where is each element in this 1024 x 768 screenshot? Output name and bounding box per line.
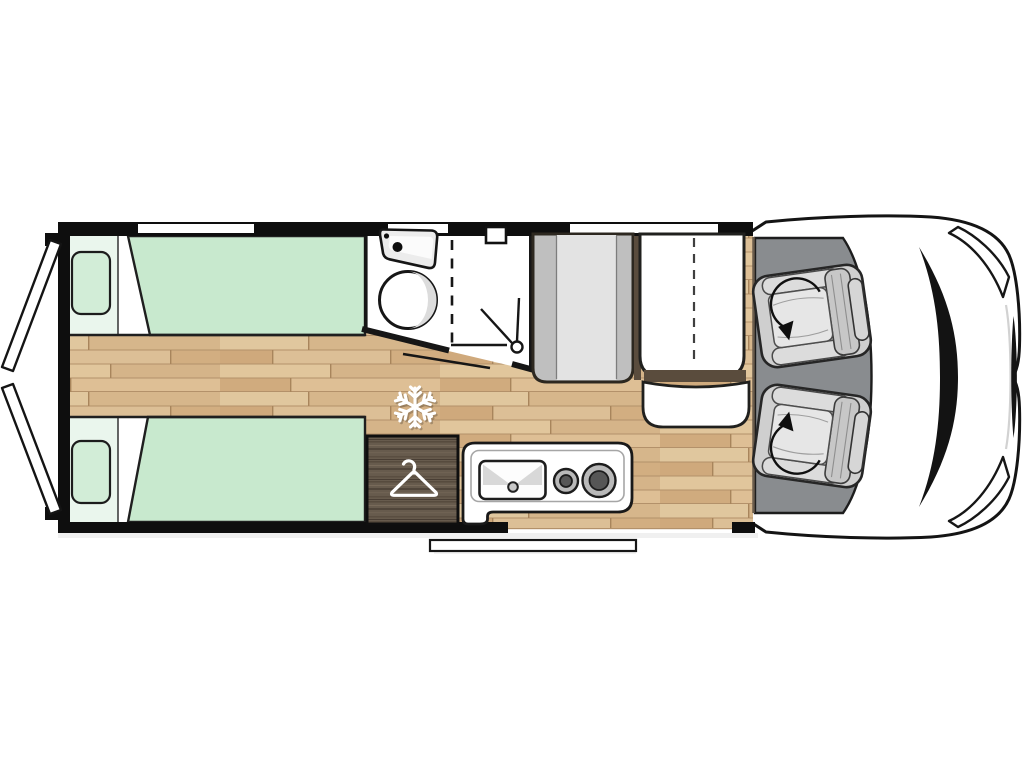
wardrobe-cabinet [367,436,458,524]
roof-vent [486,227,506,243]
cab-seat-bottom [751,383,873,489]
burner-small-center [560,475,572,487]
bed-bottom [128,417,365,522]
pillow-top [72,252,110,314]
table-seat-gap [644,370,746,382]
cab-seat-top [751,263,873,369]
bed-top [128,236,365,335]
wall-bottom-stub [732,522,755,533]
floorplan-page [0,0,1024,768]
wall-rear [58,222,70,533]
dinette-seat [643,382,749,427]
vehicle-cab [749,216,1020,538]
swivel-seat [751,263,873,369]
doorway-floor [508,522,732,529]
kitchen-unit [463,443,632,524]
washbasin-icon [380,229,438,328]
entry-step [430,540,636,551]
wardrobe [367,436,458,524]
pillow-bottom [72,441,110,503]
doorway-edge [508,528,732,529]
dinette-table [640,234,744,376]
vehicle-shadow [58,533,758,538]
tap-dot-large [393,242,403,252]
bench-center-band [557,235,616,380]
burner-large-center [590,471,609,490]
tap-dot-small [384,233,389,238]
sink-drain [508,482,518,492]
window-dinette [570,224,718,233]
window-bedroom [138,224,254,233]
swivel-seat [751,383,873,489]
